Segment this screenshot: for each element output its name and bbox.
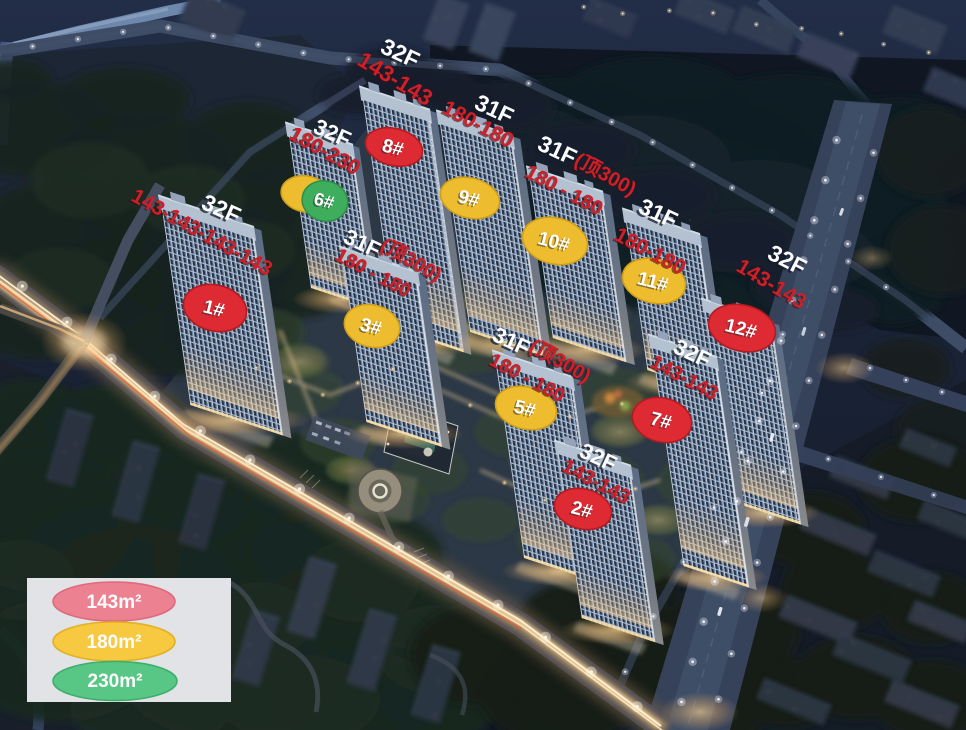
svg-text:180m²: 180m² <box>87 632 142 653</box>
svg-text:230m²: 230m² <box>88 671 143 692</box>
svg-text:143m²: 143m² <box>87 592 142 613</box>
